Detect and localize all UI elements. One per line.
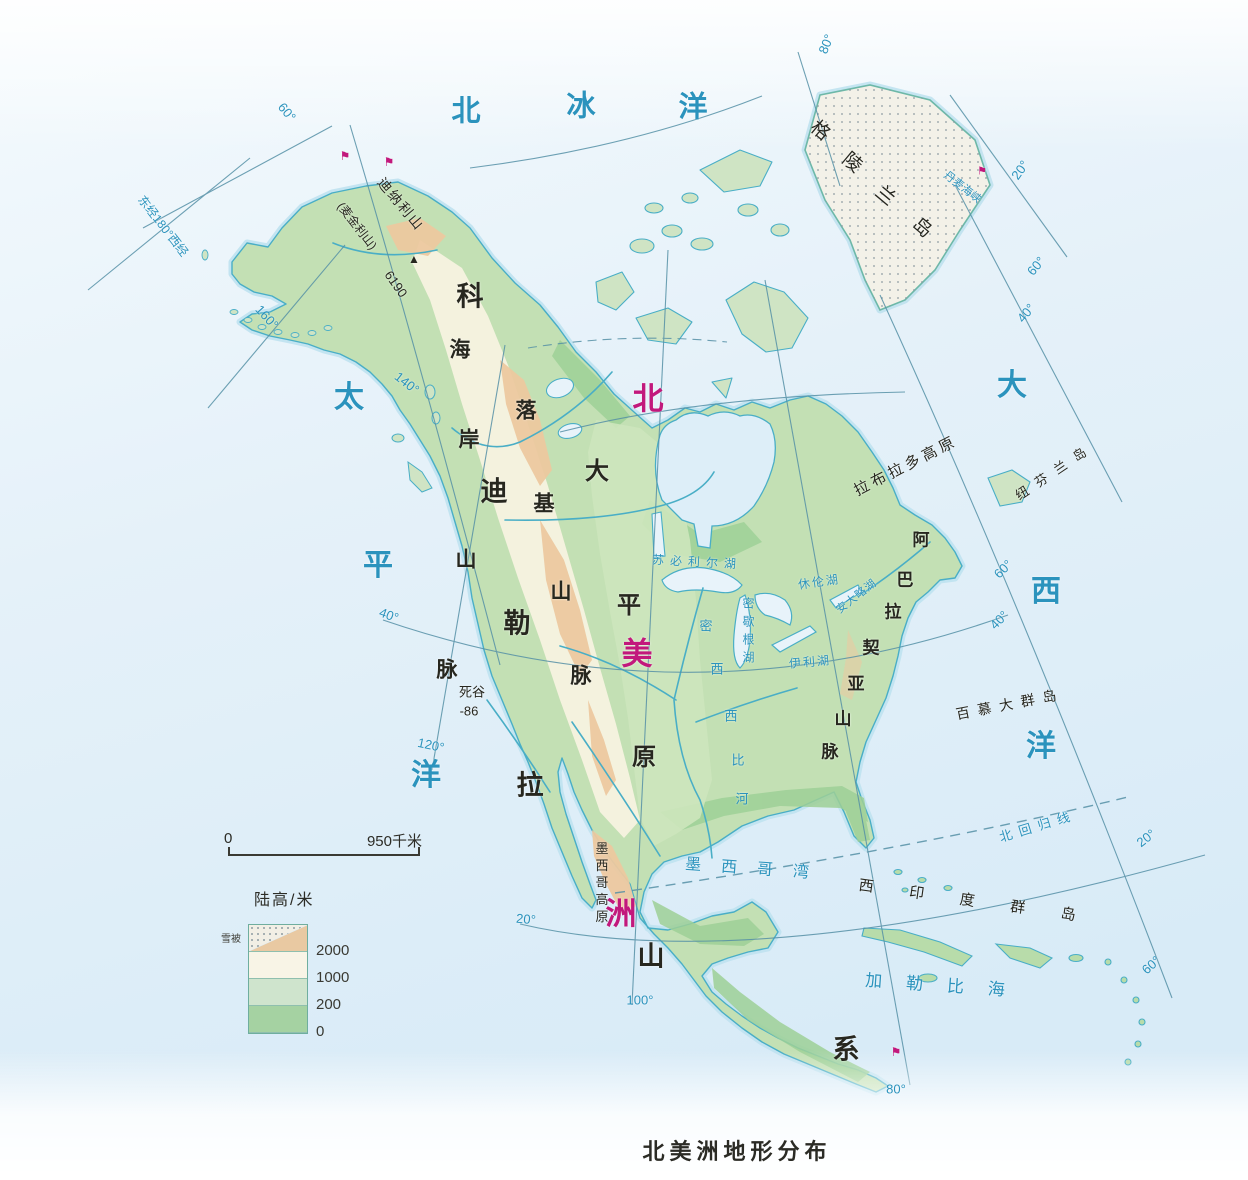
label-denali: 迪纳利山: [375, 175, 427, 233]
label-coast-range: 海: [450, 340, 471, 361]
legend-values: 200010002000: [316, 924, 386, 1032]
label-mississippi-river: 西: [710, 663, 723, 676]
label-coast-range: 岸: [459, 430, 480, 451]
elevation-legend: 陆高/米 200010002000 雪被: [232, 886, 392, 910]
label-mississippi-river: 密: [699, 620, 712, 633]
label-greenland: 格: [807, 118, 834, 145]
label-cordillera: 迪: [481, 479, 508, 506]
legend-snow-label: 雪被: [221, 930, 241, 945]
grid-label: 20°: [516, 912, 537, 927]
legend-cell-0: [249, 925, 307, 952]
grid-label: 120°: [416, 736, 445, 754]
label-north-america: 北: [633, 384, 664, 415]
label-newfoundland: 纽芬兰岛: [1013, 440, 1097, 502]
label-lake-michigan: 密歇根湖: [742, 597, 754, 669]
legend-value: 1000: [316, 969, 349, 986]
label-north-america: 洲: [606, 899, 637, 930]
grid-label: 60°: [991, 557, 1014, 580]
legend-color-box: [248, 924, 308, 1034]
label-rocky-mountains: 山: [551, 582, 572, 603]
label-mckinley: (麦金利山): [335, 200, 379, 252]
grid-label: 160°: [253, 303, 281, 332]
label-lake-huron: 休伦湖: [797, 573, 840, 591]
grid-label: 20°: [1134, 827, 1158, 849]
map-labels-layer: 北冰洋太平洋大西洋墨西哥湾加勒比海北回归线丹麦海峡苏必利尔湖休伦湖密歇根湖安大略…: [0, 0, 1248, 1180]
label-appalachian: 契: [863, 640, 880, 657]
label-north-america: 美: [622, 639, 653, 670]
label-gulf-of-mexico: 墨西哥湾: [685, 857, 830, 883]
label-atlantic-ocean: 洋: [1026, 732, 1056, 762]
grid-label: 80°: [816, 32, 835, 55]
label-cordillera: 勒: [504, 611, 531, 638]
label-mississippi-river: 西: [724, 710, 737, 723]
grid-label: 80°: [886, 1083, 906, 1096]
label-appalachian: 山: [835, 711, 852, 728]
label-tropic-of-cancer: 北回归线: [998, 808, 1078, 844]
scale-end: 950千米: [367, 830, 422, 851]
label-arctic-ocean: 洋: [678, 94, 707, 123]
label-appalachian: 亚: [848, 676, 865, 693]
label-cordillera: 科: [457, 284, 484, 311]
volcano-marker: ⚑: [384, 156, 395, 168]
label-lake-erie: 伊利湖: [789, 654, 832, 670]
grid-label: 60°: [276, 100, 299, 123]
legend-value: 0: [316, 1023, 324, 1040]
legend-value: 2000: [316, 942, 349, 959]
label-greenland: 陵: [839, 150, 866, 177]
label-pacific-ocean: 平: [363, 551, 393, 581]
label-coast-range: 山: [456, 550, 477, 571]
label-mississippi-river: 比: [731, 754, 744, 767]
topographic-map-north-america: 北冰洋太平洋大西洋墨西哥湾加勒比海北回归线丹麦海峡苏必利尔湖休伦湖密歇根湖安大略…: [0, 0, 1248, 1180]
label-appalachian: 阿: [913, 532, 930, 549]
label-great-plains: 平: [617, 594, 641, 618]
label-great-plains: 原: [632, 746, 656, 770]
legend-cell-2: [249, 979, 307, 1006]
label-death-valley-depth: -86: [460, 705, 479, 718]
legend-cell-1: [249, 952, 307, 979]
label-denali-elevation: 6190: [382, 268, 409, 299]
volcano-marker: ⚑: [891, 1046, 902, 1058]
label-appalachian: 脉: [822, 744, 839, 761]
label-west-indies: 西印度群岛: [858, 878, 1113, 928]
label-rocky-mountains: 落: [516, 401, 537, 422]
map-title: 北美洲地形分布: [642, 1134, 831, 1166]
legend-cell-3: [249, 1006, 307, 1033]
label-appalachian: 巴: [897, 572, 914, 589]
label-greenland: 岛: [909, 215, 936, 242]
label-atlantic-ocean: 大: [997, 371, 1027, 401]
label-death-valley: 死谷: [459, 686, 485, 699]
peak-icon: ▲: [408, 253, 420, 265]
grid-label: 60°: [1139, 954, 1162, 977]
label-coast-range: 脉: [437, 660, 458, 681]
label-atlantic-ocean: 西: [1031, 577, 1061, 607]
label-rocky-mountains: 基: [534, 494, 555, 515]
label-pacific-ocean: 洋: [411, 761, 441, 791]
label-bermuda: 百慕大群岛: [955, 687, 1066, 722]
label-arctic-ocean: 冰: [566, 93, 595, 122]
grid-label: 40°: [987, 608, 1010, 631]
label-mississippi-river: 河: [735, 793, 748, 806]
label-great-plains: 大: [585, 460, 609, 484]
label-caribbean-sea: 加勒比海: [865, 972, 1030, 1000]
grid-label: 100°: [627, 994, 654, 1007]
label-lake-superior: 苏必利尔湖: [652, 554, 743, 571]
label-cordillera: 拉: [517, 773, 544, 800]
legend-title: 陆高/米: [254, 886, 392, 910]
label-lake-ontario: 安大略湖: [835, 578, 880, 616]
scale-start: 0: [224, 830, 232, 847]
grid-label: 20°: [1009, 158, 1031, 182]
label-rocky-mountains: 脉: [571, 666, 592, 687]
label-cordillera: 系: [833, 1037, 860, 1064]
grid-label-180: 东经180°西经: [136, 194, 190, 259]
volcano-marker: ⚑: [340, 150, 351, 162]
volcano-marker: ⚑: [977, 167, 987, 178]
scale-bar-line: [228, 854, 420, 856]
grid-label: 40°: [1015, 301, 1038, 324]
label-appalachian: 拉: [885, 604, 902, 621]
label-cordillera: 山: [638, 944, 665, 971]
grid-label: 140°: [392, 370, 421, 397]
grid-label: 60°: [1025, 254, 1048, 277]
grid-label: 40°: [378, 606, 401, 625]
scale-bar: 0 950千米: [222, 830, 422, 860]
legend-value: 200: [316, 996, 341, 1013]
label-labrador-plateau: 拉布拉多高原: [852, 433, 960, 498]
label-pacific-ocean: 太: [334, 383, 364, 413]
label-arctic-ocean: 北: [451, 98, 480, 127]
label-greenland: 兰: [872, 183, 899, 210]
